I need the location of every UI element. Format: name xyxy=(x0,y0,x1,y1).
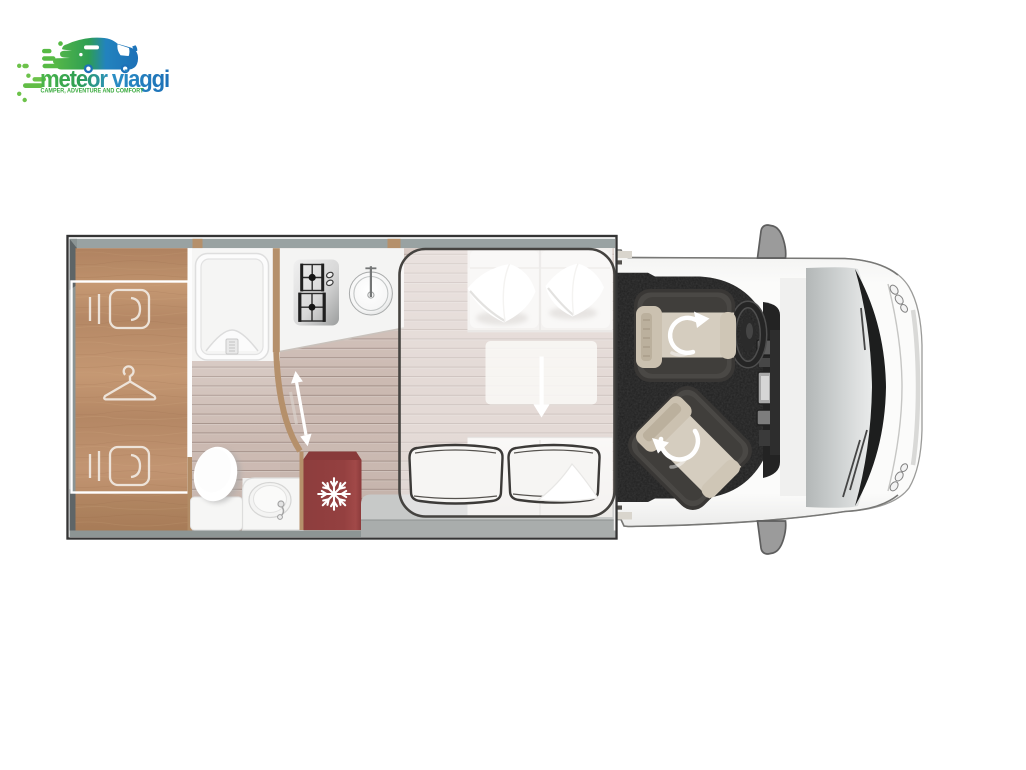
svg-text:CAMPER, ADVENTURE AND COMFORT: CAMPER, ADVENTURE AND COMFORT xyxy=(41,88,144,95)
